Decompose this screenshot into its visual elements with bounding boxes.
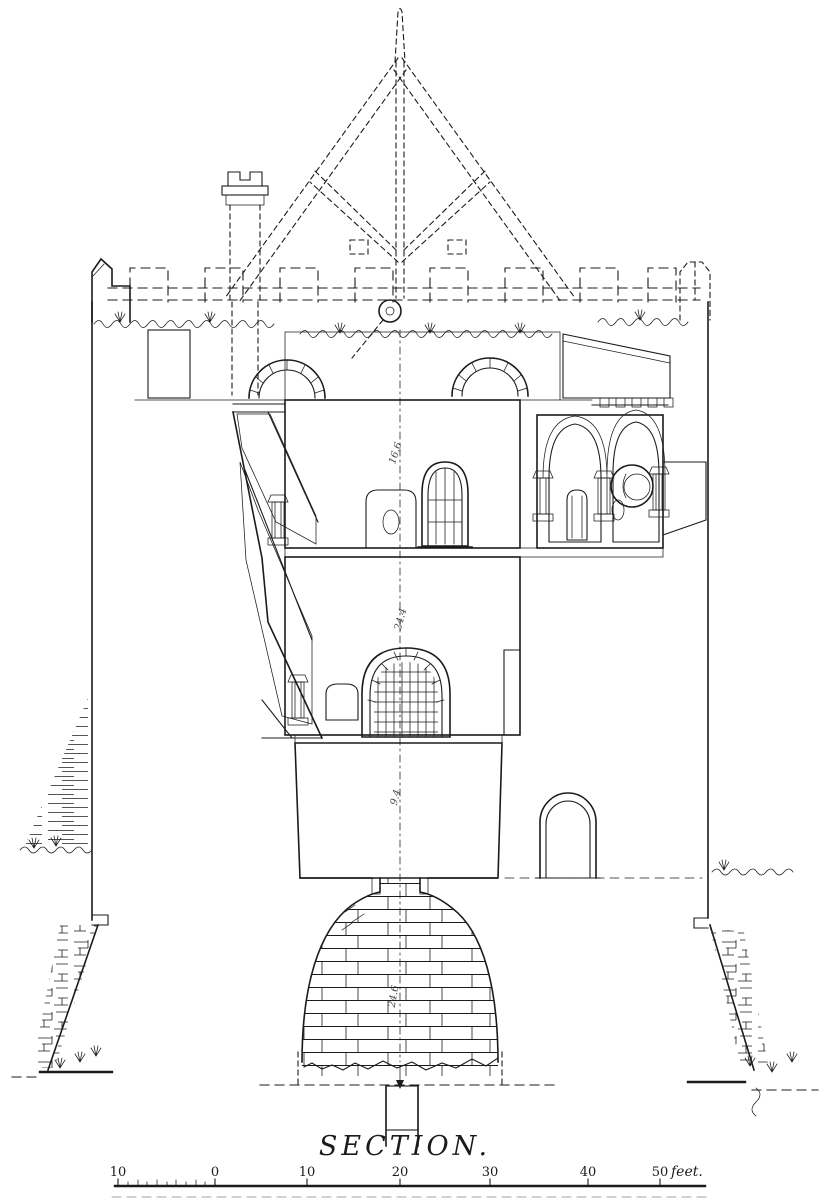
dimension-annotation-3: 9.4: [389, 788, 404, 806]
embankment-left: [20, 698, 92, 853]
rafter-left: [225, 58, 406, 302]
left-corner-merlon: [92, 259, 130, 322]
roof-truss: [108, 9, 700, 359]
caption: SECTION.: [319, 1131, 491, 1162]
section-drawing: 16.6 24.4: [0, 0, 821, 1200]
left-plinth-rubble: [32, 925, 98, 1068]
sloped-bank: [563, 334, 673, 407]
crenellation-outline: [130, 268, 676, 302]
stair-passage: [233, 404, 322, 738]
fireplace-niche: [366, 490, 416, 548]
outer-wall-right: [688, 302, 818, 1116]
scale-label-6: 50: [652, 1165, 669, 1180]
main-hall: 24.4: [285, 548, 663, 737]
rafter-right: [394, 58, 575, 302]
turf-line-left: [94, 321, 274, 328]
scale-bar: 10 0 10 20 30 40 50 feet.: [110, 1164, 710, 1197]
scale-label-5: 40: [580, 1165, 597, 1180]
scale-label-1: 0: [211, 1165, 219, 1180]
right-gallery: [533, 398, 706, 548]
pier: [148, 330, 190, 398]
outer-wall-left: [12, 302, 112, 1077]
floor-band-upper: [285, 548, 663, 557]
lower-stage: 9.4: [295, 735, 502, 878]
portal: [362, 648, 450, 737]
right-corner-merlon: [680, 262, 710, 320]
dome-masonry: [296, 870, 504, 1080]
pulley: [352, 300, 401, 358]
dome-vault: 24.6: [260, 870, 560, 1146]
dimension-annotation-2: 24.4: [393, 607, 410, 632]
main-hall-masonry: [285, 557, 520, 735]
round-window: [611, 465, 653, 507]
dimension-annotation-1: 16.6: [387, 440, 405, 465]
portcullis-grid: [374, 662, 438, 737]
walk-masonry: [285, 332, 560, 400]
upper-hall-masonry: [285, 400, 520, 548]
stair-outer-edge: [233, 412, 322, 738]
corbel-row: [600, 398, 673, 407]
parapet-walk: [94, 310, 688, 407]
upper-hall: 16.6: [285, 400, 520, 548]
scale-label-2: 10: [299, 1165, 316, 1180]
scale-unit-label: feet.: [670, 1164, 703, 1180]
wall-niche: [326, 684, 358, 720]
right-plinth-rubble: [710, 928, 768, 1064]
gallery-colonnette-1: [533, 471, 553, 521]
relieving-arch-right: [452, 358, 528, 396]
engraving-page: 16.6 24.4: [0, 0, 821, 1200]
king-post: [396, 62, 404, 298]
well-arch: [505, 793, 702, 878]
scale-label-3: 20: [392, 1165, 409, 1180]
turf-line-mid: [300, 331, 552, 338]
gallery-niche: [567, 490, 587, 540]
hall-window: [418, 462, 472, 547]
gallery-arches: [543, 410, 665, 542]
scale-label-0: 10: [110, 1165, 127, 1180]
chimney: [222, 172, 268, 395]
relieving-arch-left: [249, 360, 325, 398]
strut-right: [402, 170, 490, 262]
scale-label-4: 30: [482, 1165, 499, 1180]
gallery-colonnette-2: [594, 471, 614, 521]
lower-masonry: [295, 743, 502, 878]
gallery-ornament: [612, 500, 624, 520]
turf-line-right: [598, 319, 688, 326]
strut-left: [310, 170, 398, 262]
gallery-right-wing: [663, 462, 706, 535]
